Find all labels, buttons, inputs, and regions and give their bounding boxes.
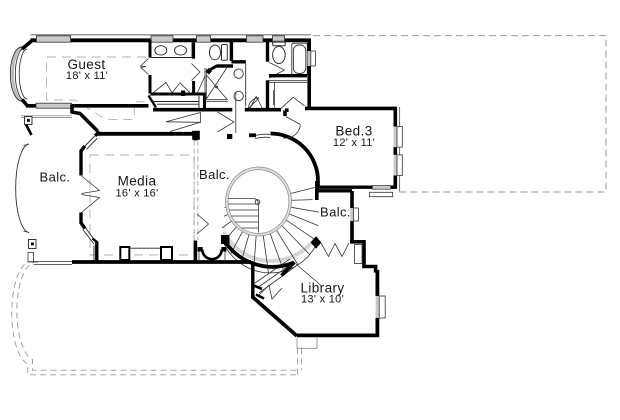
svg-text:12' x 11': 12' x 11' bbox=[333, 137, 375, 149]
svg-text:13' x 10': 13' x 10' bbox=[301, 294, 344, 306]
svg-text:Media: Media bbox=[118, 174, 157, 189]
svg-text:Balc.: Balc. bbox=[40, 170, 71, 185]
svg-text:18' x 11': 18' x 11' bbox=[66, 70, 108, 82]
svg-text:Balc.: Balc. bbox=[320, 205, 351, 220]
svg-text:16' x 16': 16' x 16' bbox=[116, 188, 159, 200]
svg-text:Balc.: Balc. bbox=[199, 167, 230, 182]
